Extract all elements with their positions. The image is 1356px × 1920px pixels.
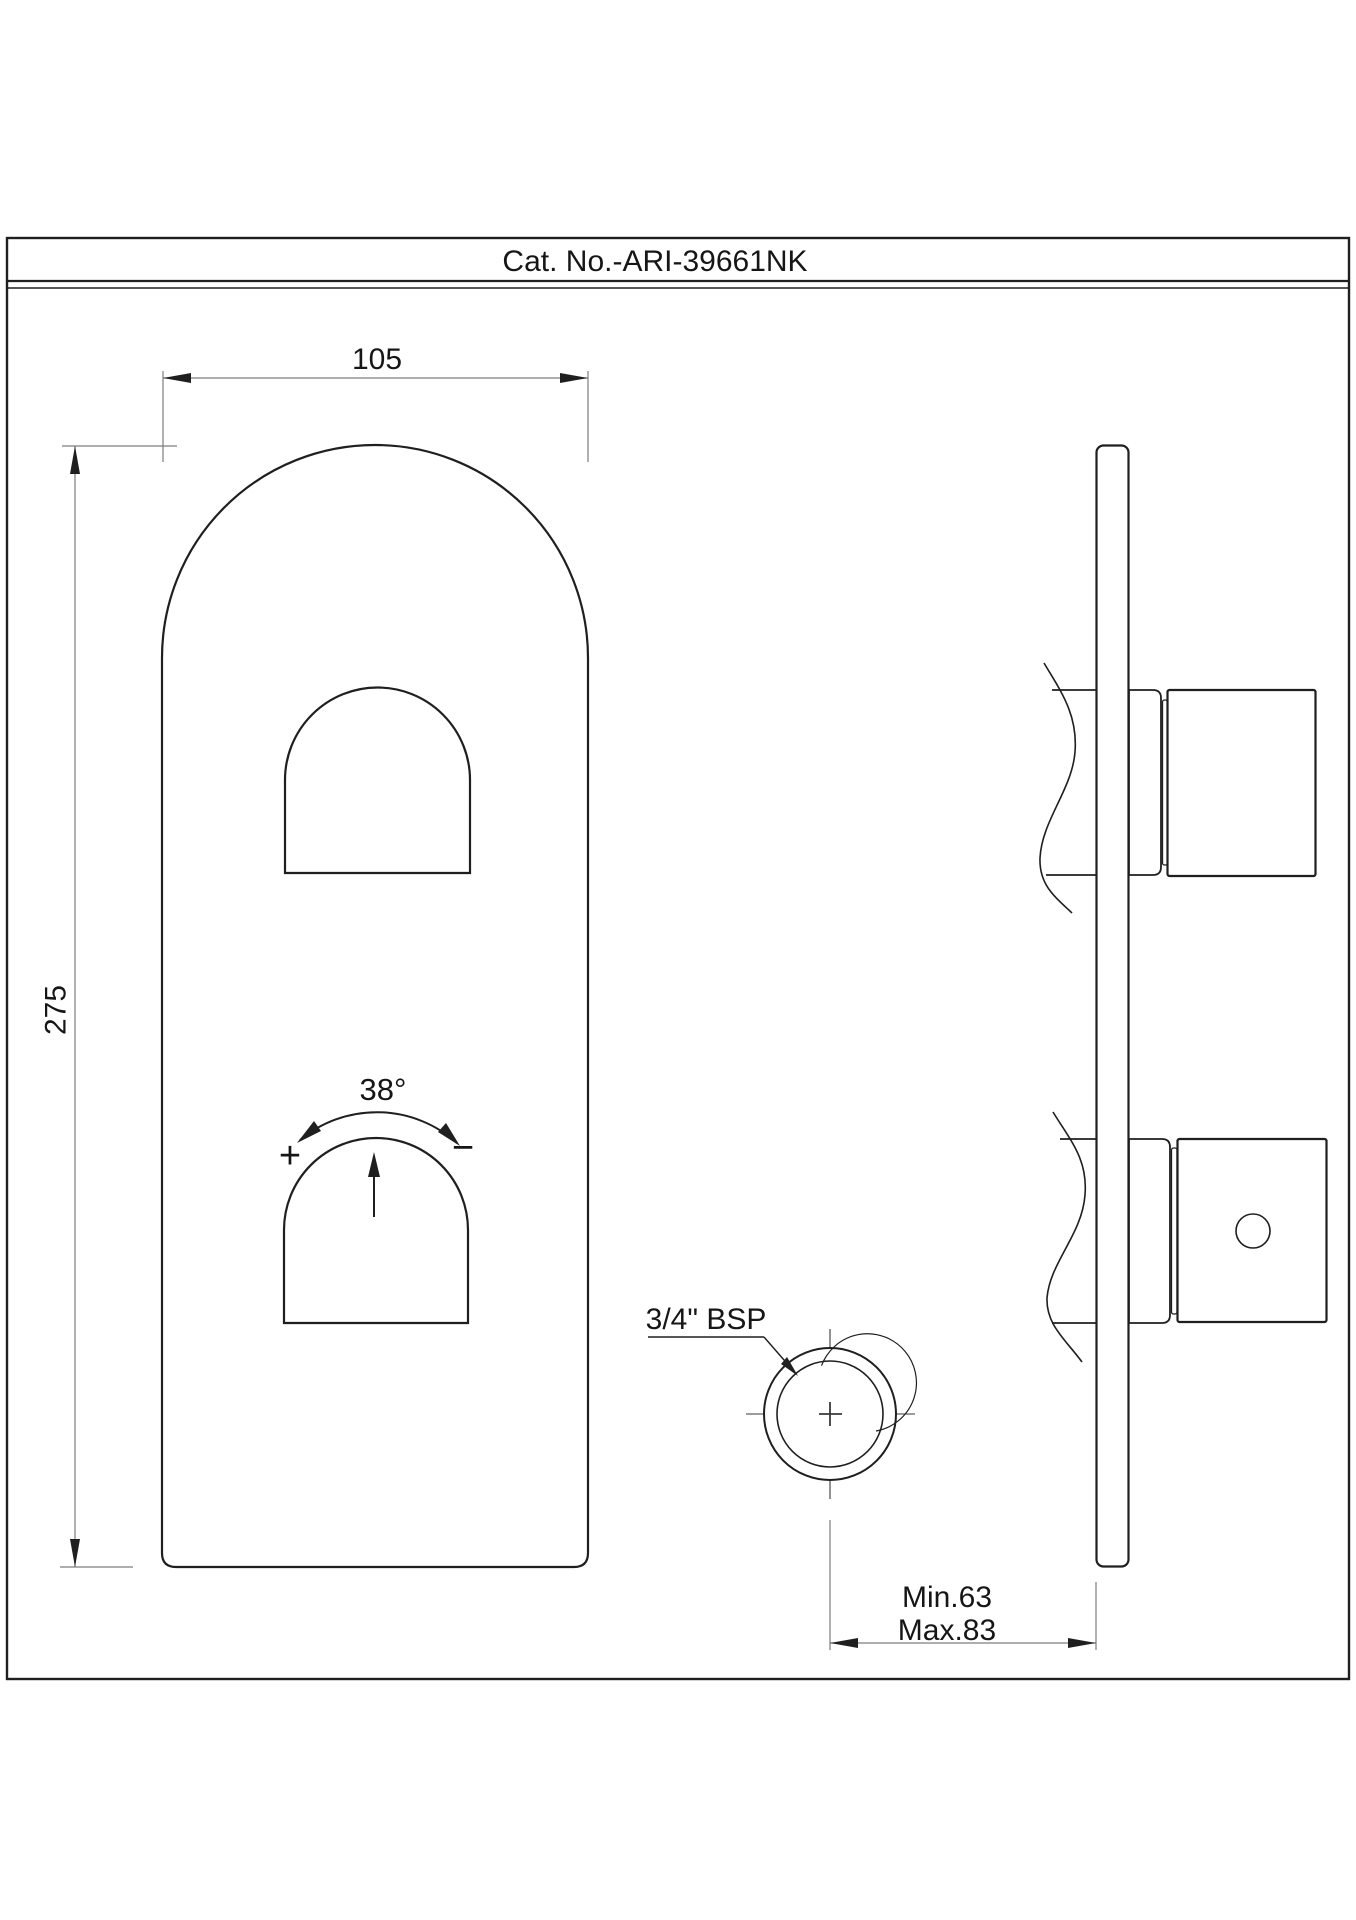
upper-knob-adapter	[1129, 690, 1161, 875]
lower-knob-body	[1178, 1139, 1327, 1322]
technical-drawing: Cat. No.-ARI-39661NK + − 38°	[0, 0, 1356, 1920]
catalog-number-title: Cat. No.-ARI-39661NK	[502, 245, 807, 278]
upper-knob-body	[1168, 690, 1316, 876]
side-plate-edge	[1097, 446, 1129, 1567]
upper-knob-side	[1129, 690, 1316, 876]
front-plate-outline	[162, 445, 588, 1567]
depth-min-label: Min.63	[902, 1581, 992, 1614]
lower-knob-adapter	[1129, 1139, 1170, 1323]
lower-knob-side	[1129, 1139, 1327, 1323]
height-dimension-label: 275	[40, 985, 73, 1035]
angle-dimension-label: 38°	[360, 1072, 407, 1107]
width-dimension-label: 105	[352, 343, 402, 376]
plus-label: +	[279, 1135, 301, 1177]
thread-size-label: 3/4" BSP	[646, 1303, 767, 1336]
upper-diverter-handle	[285, 688, 470, 874]
drawing-sheet: Cat. No.-ARI-39661NK + − 38°	[0, 0, 1356, 1920]
front-view: + − 38°	[162, 445, 588, 1567]
minus-label: −	[452, 1127, 474, 1169]
depth-max-label: Max.83	[898, 1614, 996, 1647]
lower-knob-ring	[1172, 1148, 1178, 1314]
